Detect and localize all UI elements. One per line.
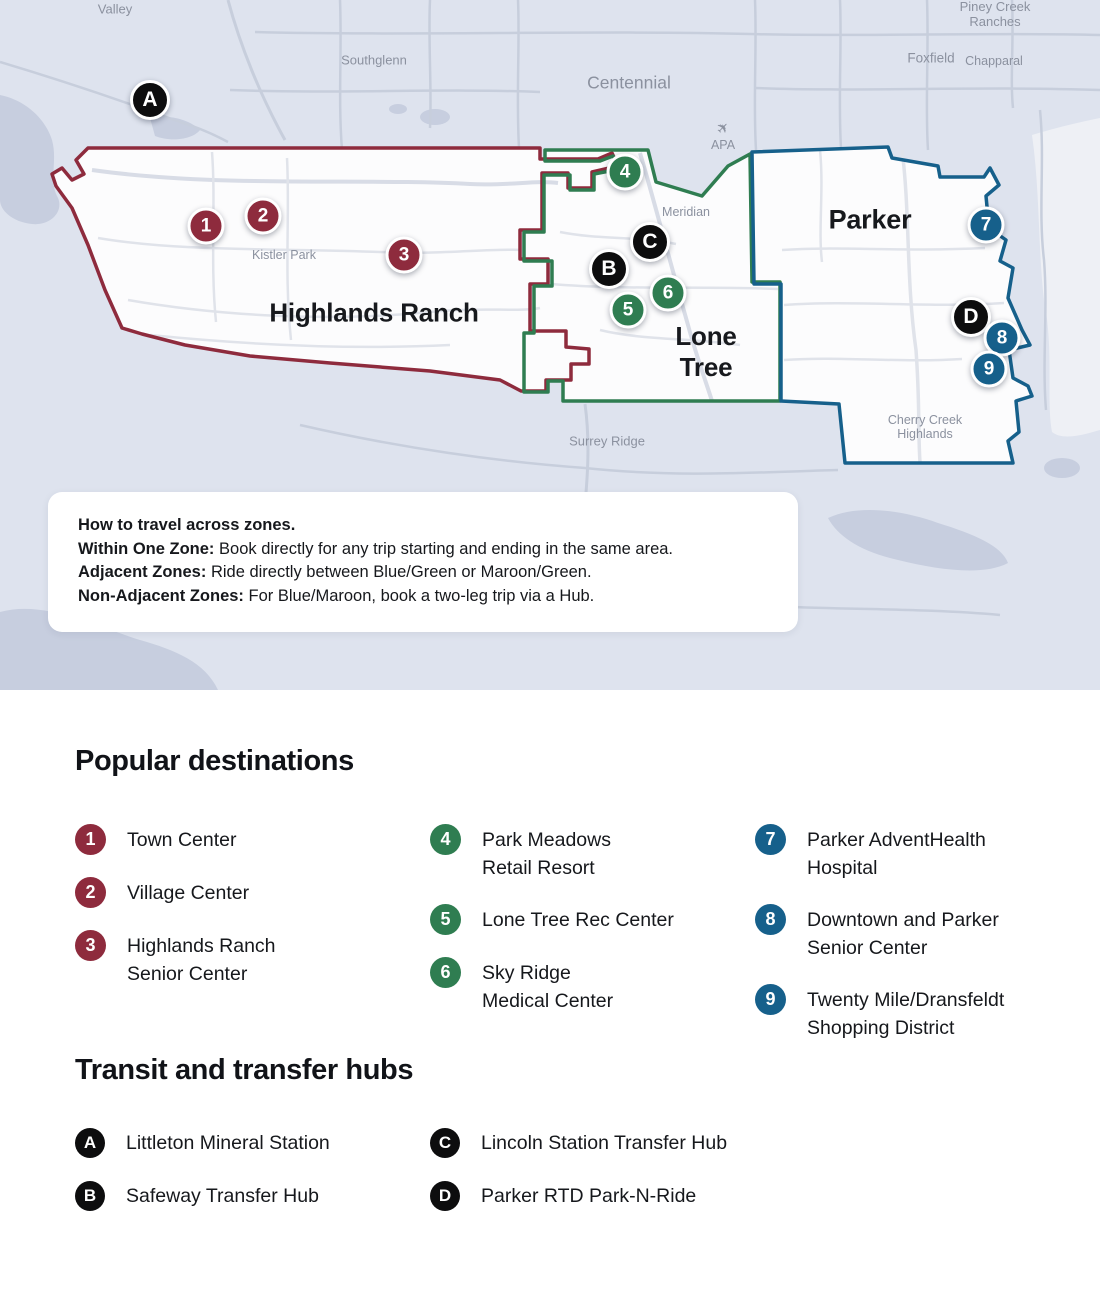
destination-number-badge-8: 8 bbox=[755, 904, 786, 935]
hub-label: Parker RTD Park-N-Ride bbox=[481, 1181, 696, 1211]
map-marker-4: 4 bbox=[607, 154, 644, 191]
destination-label: Highlands Ranch Senior Center bbox=[127, 930, 276, 988]
popular-destinations-heading: Popular destinations bbox=[75, 745, 354, 778]
map-marker-a: A bbox=[130, 80, 170, 120]
service-zone-infographic: Highlands Ranch Lone Tree Parker Valley … bbox=[0, 0, 1100, 1294]
destination-label: Town Center bbox=[127, 824, 236, 854]
map-marker-7: 7 bbox=[968, 207, 1005, 244]
map-marker-3: 3 bbox=[386, 237, 423, 274]
destination-label: Lone Tree Rec Center bbox=[482, 904, 674, 934]
destinations-column-maroon: 1 Town Center 2 Village Center 3 Highlan… bbox=[75, 824, 276, 988]
map-place-label-apa: APA bbox=[711, 138, 735, 152]
hub-letter-badge-d: D bbox=[430, 1181, 460, 1211]
hub-item-b: B Safeway Transfer Hub bbox=[75, 1181, 330, 1211]
map-marker-5: 5 bbox=[610, 292, 647, 329]
destinations-column-green: 4 Park Meadows Retail Resort 5 Lone Tree… bbox=[430, 824, 674, 1015]
map-marker-6: 6 bbox=[650, 275, 687, 312]
map-place-label-southglenn: Southglenn bbox=[341, 53, 407, 68]
map-place-label-foxfield: Foxfield bbox=[907, 51, 954, 66]
map-marker-1: 1 bbox=[188, 208, 225, 245]
destination-label: Village Center bbox=[127, 877, 249, 907]
hubs-column-left: A Littleton Mineral Station B Safeway Tr… bbox=[75, 1128, 330, 1211]
zone-label-highlands-ranch: Highlands Ranch bbox=[269, 298, 478, 329]
destination-number-badge-3: 3 bbox=[75, 930, 106, 961]
transit-hubs-heading: Transit and transfer hubs bbox=[75, 1054, 413, 1087]
map-marker-2: 2 bbox=[245, 198, 282, 235]
hub-letter-badge-c: C bbox=[430, 1128, 460, 1158]
info-line-text: For Blue/Maroon, book a two-leg trip via… bbox=[244, 587, 594, 605]
map-place-label-kistler-park: Kistler Park bbox=[252, 248, 316, 262]
destination-item-1: 1 Town Center bbox=[75, 824, 276, 855]
info-line-adjacent-zones: Adjacent Zones: Ride directly between Bl… bbox=[78, 561, 768, 585]
hub-label: Safeway Transfer Hub bbox=[126, 1181, 319, 1211]
hub-item-a: A Littleton Mineral Station bbox=[75, 1128, 330, 1158]
map-place-label-piney-creek-ranches: Piney Creek Ranches bbox=[943, 0, 1048, 29]
destinations-column-blue: 7 Parker AdventHealth Hospital 8 Downtow… bbox=[755, 824, 1004, 1042]
info-line-bold: Within One Zone: bbox=[78, 540, 214, 558]
map-marker-b: B bbox=[589, 249, 629, 289]
destination-label: Parker AdventHealth Hospital bbox=[807, 824, 986, 882]
hub-letter-badge-a: A bbox=[75, 1128, 105, 1158]
zone-map: Highlands Ranch Lone Tree Parker Valley … bbox=[0, 0, 1100, 690]
destination-number-badge-7: 7 bbox=[755, 824, 786, 855]
destination-label: Sky Ridge Medical Center bbox=[482, 957, 613, 1015]
destination-number-badge-9: 9 bbox=[755, 984, 786, 1015]
hub-label: Littleton Mineral Station bbox=[126, 1128, 330, 1158]
destination-label: Twenty Mile/Dransfeldt Shopping District bbox=[807, 984, 1004, 1042]
info-line-bold: Non-Adjacent Zones: bbox=[78, 587, 244, 605]
info-line-within-one-zone: Within One Zone: Book directly for any t… bbox=[78, 538, 768, 562]
zone-label-parker: Parker bbox=[829, 205, 912, 236]
destination-item-6: 6 Sky Ridge Medical Center bbox=[430, 957, 674, 1015]
map-place-label-surrey-ridge: Surrey Ridge bbox=[569, 434, 645, 449]
zone-label-lone-tree: Lone Tree bbox=[675, 321, 736, 383]
destination-item-4: 4 Park Meadows Retail Resort bbox=[430, 824, 674, 882]
map-place-label-chapparal: Chapparal bbox=[965, 54, 1023, 68]
destination-item-5: 5 Lone Tree Rec Center bbox=[430, 904, 674, 935]
info-line-text: Book directly for any trip starting and … bbox=[214, 540, 673, 558]
hub-item-d: D Parker RTD Park-N-Ride bbox=[430, 1181, 727, 1211]
destination-item-8: 8 Downtown and Parker Senior Center bbox=[755, 904, 1004, 962]
destination-item-2: 2 Village Center bbox=[75, 877, 276, 908]
map-marker-9: 9 bbox=[971, 351, 1008, 388]
map-marker-c: C bbox=[630, 222, 670, 262]
map-place-label-centennial: Centennial bbox=[587, 73, 671, 94]
info-box-title: How to travel across zones. bbox=[78, 514, 768, 538]
map-place-label-valley: Valley bbox=[98, 2, 132, 17]
destination-number-badge-2: 2 bbox=[75, 877, 106, 908]
destination-number-badge-4: 4 bbox=[430, 824, 461, 855]
destination-number-badge-6: 6 bbox=[430, 957, 461, 988]
info-line-text: Ride directly between Blue/Green or Maro… bbox=[206, 563, 591, 581]
destination-number-badge-1: 1 bbox=[75, 824, 106, 855]
info-line-non-adjacent-zones: Non-Adjacent Zones: For Blue/Maroon, boo… bbox=[78, 585, 768, 609]
map-place-label-meridian: Meridian bbox=[662, 205, 710, 219]
hub-label: Lincoln Station Transfer Hub bbox=[481, 1128, 727, 1158]
destination-label: Park Meadows Retail Resort bbox=[482, 824, 611, 882]
map-place-label-cherry-creek-highlands: Cherry Creek Highlands bbox=[888, 413, 962, 441]
zone-travel-info-box: How to travel across zones. Within One Z… bbox=[48, 492, 798, 632]
destination-item-3: 3 Highlands Ranch Senior Center bbox=[75, 930, 276, 988]
hub-item-c: C Lincoln Station Transfer Hub bbox=[430, 1128, 727, 1158]
destination-item-7: 7 Parker AdventHealth Hospital bbox=[755, 824, 1004, 882]
info-line-bold: Adjacent Zones: bbox=[78, 563, 206, 581]
destination-label: Downtown and Parker Senior Center bbox=[807, 904, 999, 962]
destination-item-9: 9 Twenty Mile/Dransfeldt Shopping Distri… bbox=[755, 984, 1004, 1042]
destination-number-badge-5: 5 bbox=[430, 904, 461, 935]
hubs-column-right: C Lincoln Station Transfer Hub D Parker … bbox=[430, 1128, 727, 1211]
hub-letter-badge-b: B bbox=[75, 1181, 105, 1211]
